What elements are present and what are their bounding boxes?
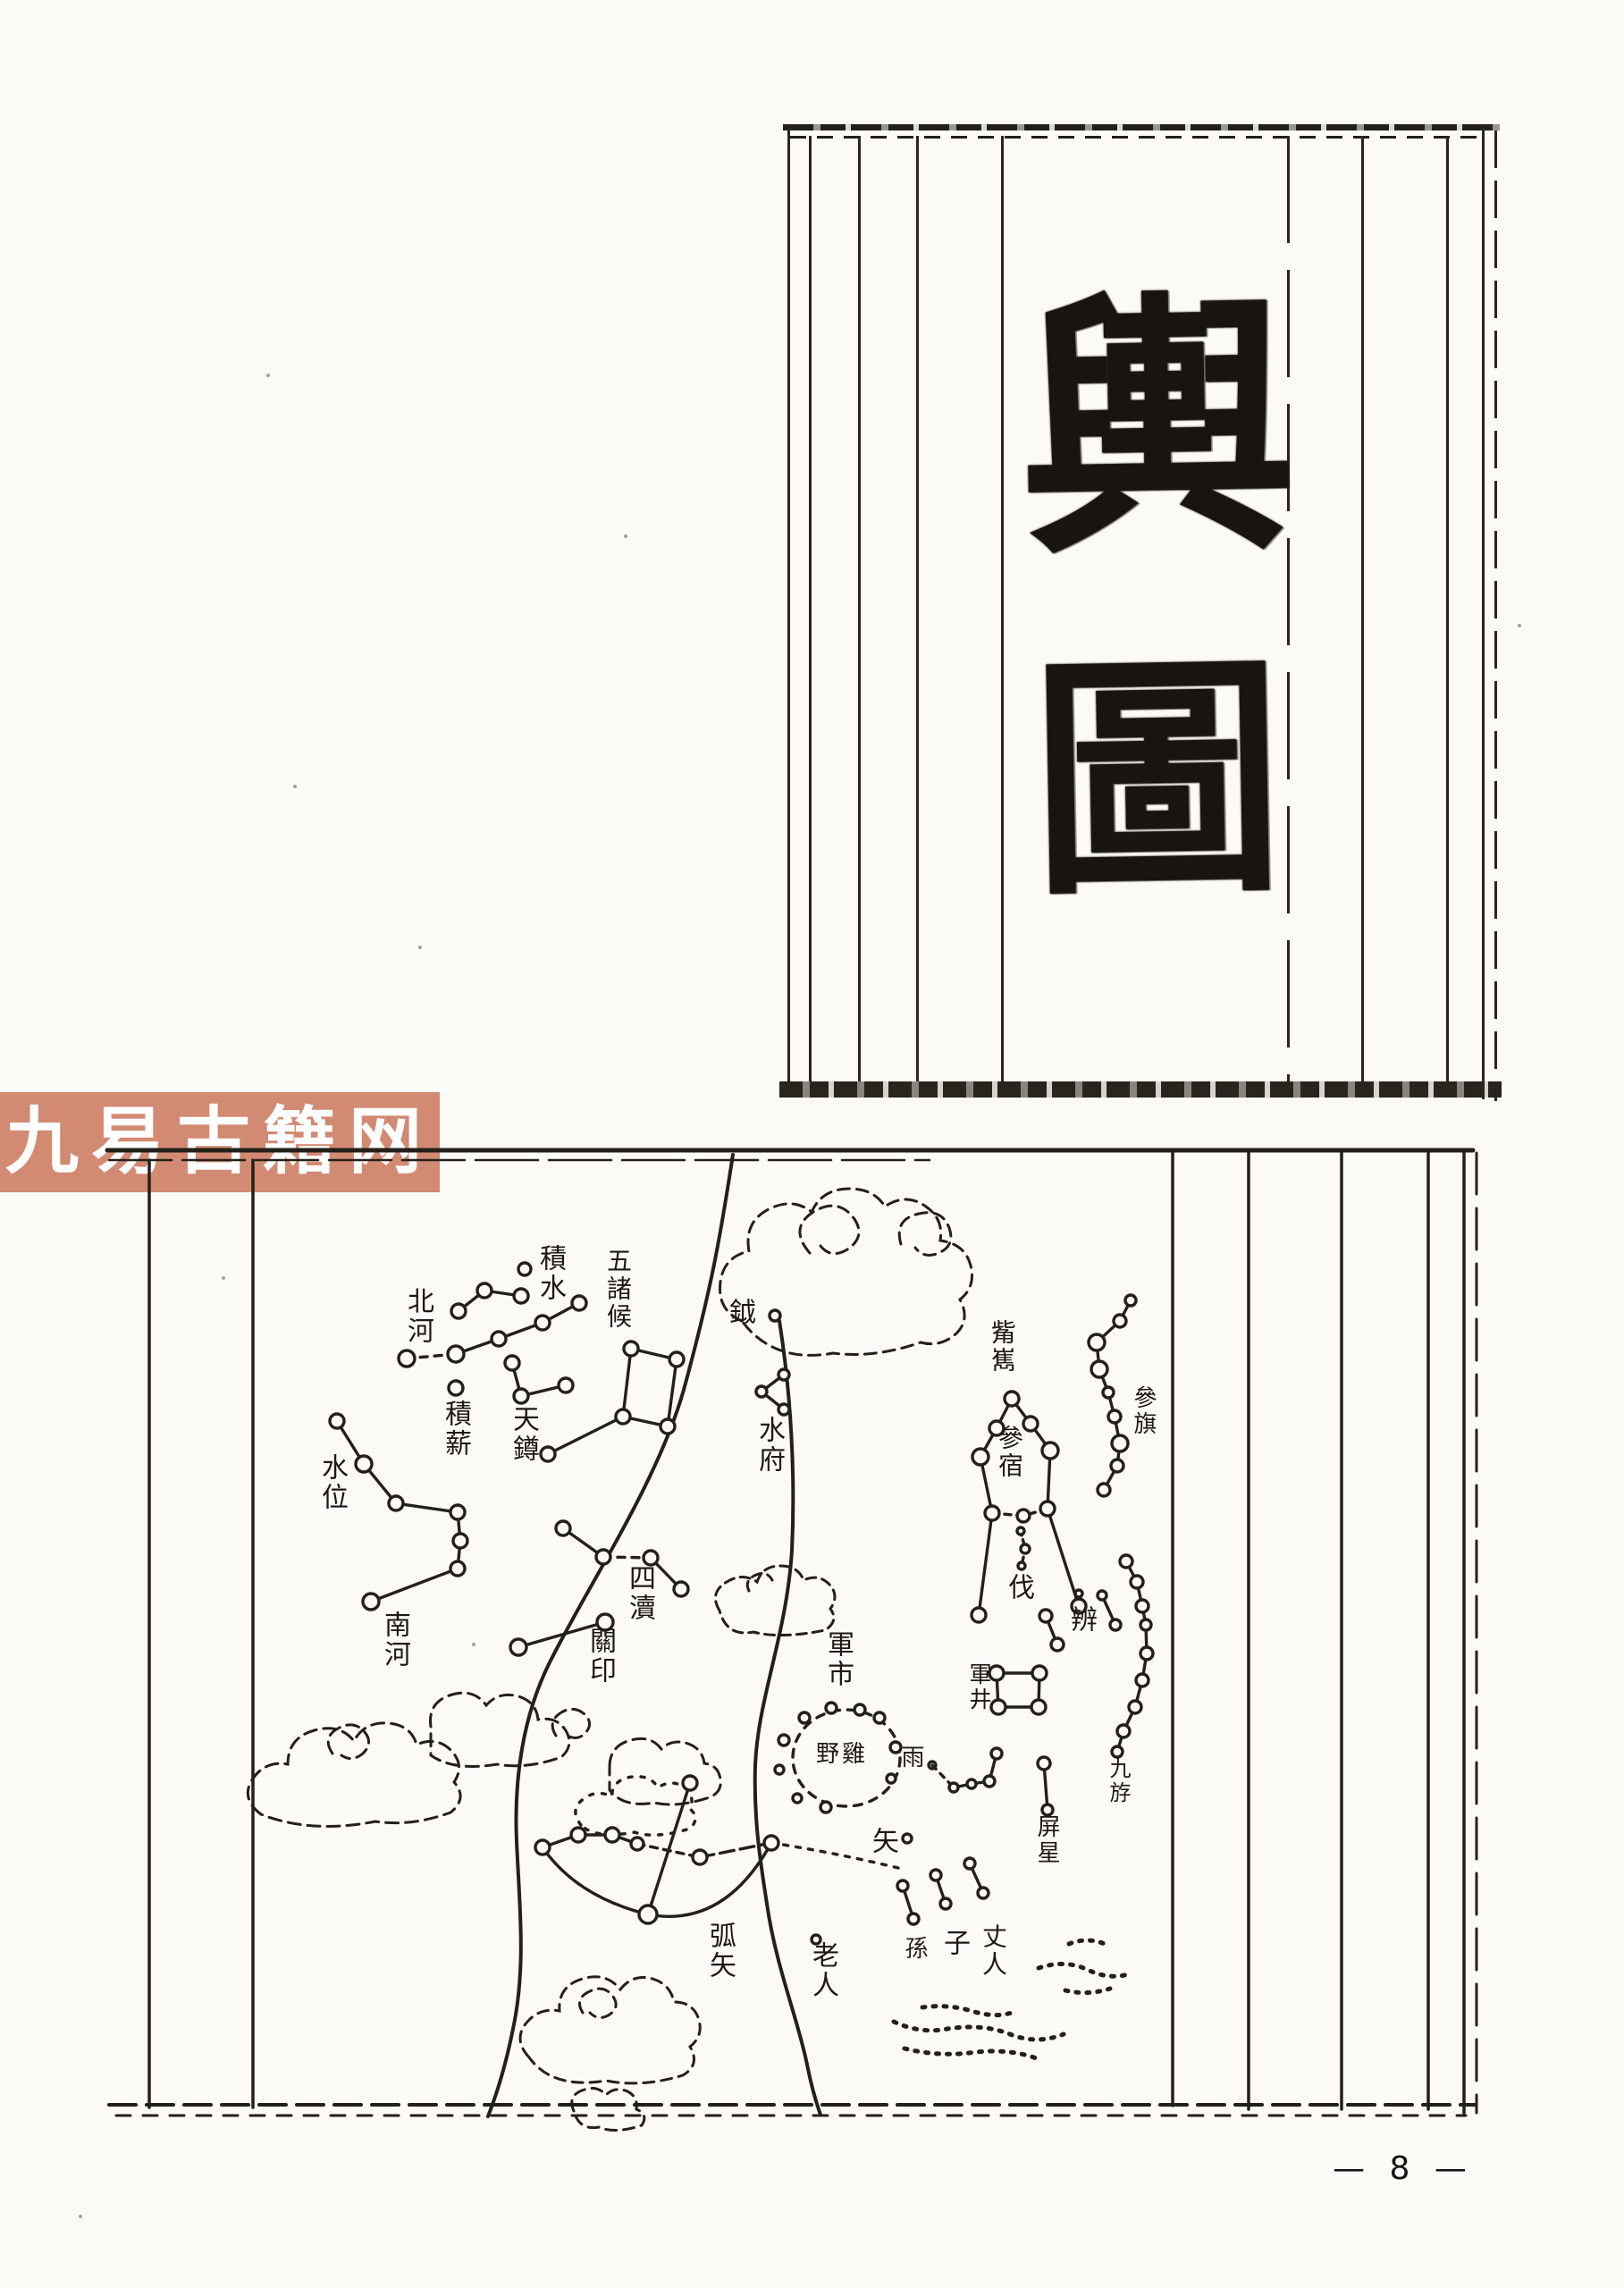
title-panel-bottom-border	[779, 1081, 1502, 1098]
title-panel-top-border-inner	[790, 136, 1487, 139]
cloud-bottom-center	[520, 1977, 700, 2131]
constellation-label-sun: 孫	[903, 1936, 926, 1962]
constellation-label-guanyin: 關印	[586, 1627, 613, 1686]
column-rule	[1361, 136, 1364, 1081]
constellation-label-shuiwei: 水位	[318, 1453, 345, 1512]
constellation-sidu	[556, 1521, 688, 1596]
scanned-book-page: 輿 圖 九易古籍网	[0, 0, 1624, 2288]
constellation-label-sidu: 四瀆	[626, 1564, 652, 1623]
watermark-text: 九易古籍网	[5, 1106, 434, 1179]
constellation-label-nanhe: 南河	[381, 1611, 408, 1670]
title-panel-top-border	[783, 124, 1500, 130]
constellation-quad	[541, 1342, 684, 1461]
title-panel-right-edge-outer	[1494, 130, 1497, 1101]
title-panel-right-edge	[1482, 125, 1485, 1099]
constellation-label-beihe: 北河	[404, 1287, 431, 1346]
constellation-yu-chain	[929, 1748, 1002, 1792]
constellation-tianzun	[505, 1356, 573, 1403]
column-rule	[1001, 136, 1004, 1081]
title-character-top: 輿	[1003, 292, 1311, 573]
constellation-hushi	[535, 1776, 898, 1923]
constellation-label-yu: 雨	[899, 1745, 922, 1771]
constellation-jishui	[518, 1263, 531, 1275]
constellation-label-wuzhuhou: 五諸候	[604, 1248, 629, 1331]
cloud-top	[720, 1189, 972, 1355]
constellation-label-shi: 矢	[869, 1827, 896, 1856]
title-character-bottom: 圖	[1017, 654, 1299, 911]
constellation-label-bian: 辨	[1067, 1605, 1094, 1635]
cloud-mid-right	[716, 1566, 836, 1636]
cloud-bottom-left	[248, 1693, 720, 1826]
constellation-pingxing	[1038, 1757, 1053, 1815]
page-number: — 8 —	[1323, 2150, 1484, 2187]
constellation-label-yeji: 野雞	[816, 1743, 868, 1766]
scan-noise	[79, 374, 1521, 2218]
chart-borders	[107, 1150, 1477, 2116]
constellation-shi	[903, 1834, 912, 1843]
constellation-zhangren	[964, 1858, 989, 1898]
constellation-sun	[897, 1880, 919, 1924]
constellation-label-hushi: 弧矢	[706, 1922, 733, 1981]
title-panel-left-edge	[787, 125, 790, 1096]
constellation-label-junjing: 軍井	[967, 1662, 989, 1712]
constellation-label-laoren: 老人	[809, 1941, 836, 2000]
column-rule	[1446, 136, 1449, 1081]
constellation-label-jixin: 積薪	[442, 1400, 468, 1459]
constellation-shenqi	[1089, 1295, 1136, 1496]
constellation-label-jishui: 積水	[536, 1244, 563, 1303]
column-rule	[916, 136, 919, 1081]
cloud-band-small	[576, 1777, 695, 1835]
constellation-label-yue: 鉞	[726, 1298, 753, 1327]
constellation-yue	[770, 1310, 780, 1321]
constellation-jiuyou	[1112, 1555, 1153, 1757]
constellation-label-jiuyou: 九斿	[1107, 1757, 1128, 1805]
column-rule	[809, 136, 812, 1081]
constellation-wuzhuhou	[451, 1283, 528, 1318]
constellation-label-zhangren: 丈人	[980, 1923, 1005, 1979]
constellation-shuifu	[756, 1369, 789, 1415]
constellation-label-pingxing: 屏星	[1035, 1814, 1058, 1866]
constellation-label-zi: 子	[940, 1929, 967, 1958]
constellation-label-fa: 伐	[1005, 1573, 1031, 1602]
watermark-banner: 九易古籍网	[0, 1092, 440, 1192]
constellation-fa	[1017, 1527, 1030, 1569]
column-rule	[858, 136, 861, 1081]
constellation-junjing	[989, 1666, 1047, 1714]
constellation-label-shenqi: 參旗	[1132, 1385, 1155, 1437]
constellation-label-tianzun: 天鐏	[509, 1405, 536, 1464]
constellation-label-zixi: 觜嶲	[989, 1319, 1014, 1375]
constellation-jixin	[449, 1381, 463, 1395]
constellation-label-shenxiu: 參宿	[996, 1425, 1021, 1480]
constellation-label-junshi: 軍市	[824, 1630, 851, 1689]
constellation-label-shuifu: 水府	[755, 1416, 782, 1475]
degraded-speckles	[894, 1940, 1131, 2059]
constellation-zi	[930, 1870, 951, 1909]
